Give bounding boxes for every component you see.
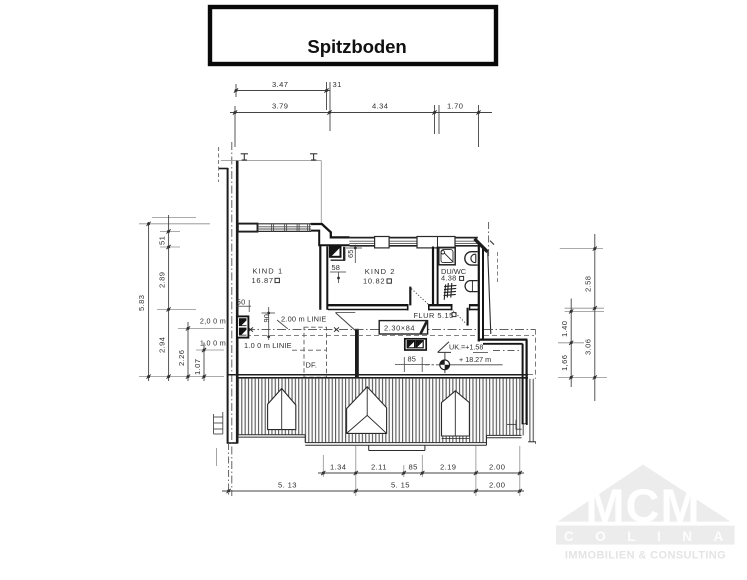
- svg-text:31: 31: [333, 80, 342, 89]
- svg-text:KIND 2: KIND 2: [365, 267, 396, 276]
- svg-text:1.07: 1.07: [193, 359, 202, 375]
- svg-text:KIND 1: KIND 1: [253, 267, 284, 276]
- svg-text:COLINA: COLINA: [564, 529, 745, 544]
- svg-text:1.0 0 m LINIE: 1.0 0 m LINIE: [244, 341, 292, 350]
- svg-text:10.82: 10.82: [363, 276, 385, 285]
- svg-text:1.34: 1.34: [330, 463, 346, 472]
- svg-text:85: 85: [408, 355, 417, 364]
- svg-text:58: 58: [332, 263, 341, 272]
- svg-text:1.40: 1.40: [560, 321, 569, 337]
- svg-text:51: 51: [158, 236, 167, 245]
- svg-text:2.11: 2.11: [371, 463, 387, 472]
- svg-text:2.30×84: 2.30×84: [384, 324, 415, 333]
- svg-text:2.94: 2.94: [158, 337, 167, 353]
- svg-text:1,66: 1,66: [560, 355, 569, 371]
- svg-text:85: 85: [409, 463, 418, 472]
- svg-text:2.26: 2.26: [177, 350, 186, 366]
- svg-text:3.06: 3.06: [584, 339, 593, 355]
- svg-text:+ 18.27 m: + 18.27 m: [459, 355, 491, 364]
- svg-text:2.19: 2.19: [440, 463, 456, 472]
- svg-text:2.89: 2.89: [158, 272, 167, 288]
- svg-text:DF.: DF.: [306, 361, 318, 370]
- svg-text:16.87: 16.87: [252, 276, 274, 285]
- svg-text:IMMOBILIEN & CONSULTING: IMMOBILIEN & CONSULTING: [565, 550, 726, 562]
- svg-text:3.47: 3.47: [272, 80, 288, 89]
- svg-text:2.00: 2.00: [489, 481, 505, 490]
- svg-text:MCM: MCM: [585, 479, 700, 532]
- svg-text:2.00 m LINIE: 2.00 m LINIE: [281, 315, 327, 324]
- svg-text:Spitzboden: Spitzboden: [307, 36, 406, 57]
- svg-text:90: 90: [262, 314, 271, 323]
- svg-text:65: 65: [346, 249, 355, 258]
- svg-text:1.0 0 m: 1.0 0 m: [200, 338, 226, 347]
- svg-text:5. 13: 5. 13: [278, 481, 297, 490]
- svg-text:2.58: 2.58: [584, 276, 593, 292]
- svg-text:2,0 0 m: 2,0 0 m: [200, 316, 226, 325]
- svg-text:FLUR 5.15: FLUR 5.15: [414, 311, 454, 320]
- svg-text:5. 15: 5. 15: [391, 481, 410, 490]
- svg-text:4.38: 4.38: [441, 274, 457, 283]
- svg-text:4.34: 4.34: [372, 102, 388, 111]
- svg-text:50: 50: [237, 298, 246, 307]
- svg-text:1.70: 1.70: [447, 102, 463, 111]
- svg-text:5.83: 5.83: [137, 295, 146, 311]
- svg-text:UK.=+1.58: UK.=+1.58: [449, 342, 483, 351]
- svg-text:3.79: 3.79: [272, 102, 288, 111]
- svg-text:2.00: 2.00: [489, 463, 505, 472]
